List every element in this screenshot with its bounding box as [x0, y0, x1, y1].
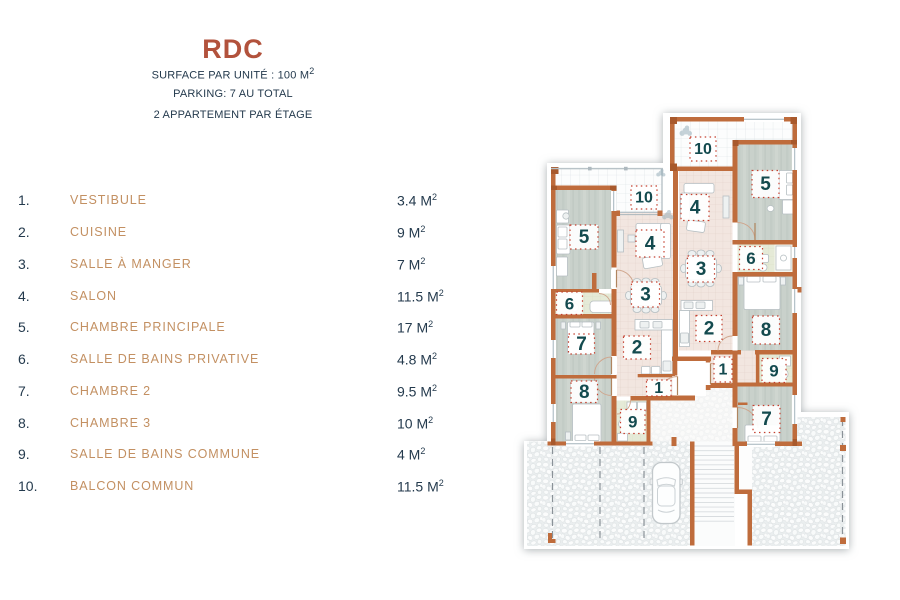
svg-text:4: 4: [645, 234, 656, 255]
svg-text:3: 3: [696, 259, 707, 280]
svg-text:4: 4: [690, 198, 701, 219]
svg-text:6: 6: [565, 294, 574, 313]
svg-text:9: 9: [769, 362, 778, 381]
svg-text:10: 10: [694, 141, 712, 158]
svg-text:8: 8: [761, 320, 772, 341]
svg-text:3: 3: [640, 285, 651, 306]
svg-text:2: 2: [704, 319, 715, 340]
svg-text:8: 8: [579, 382, 590, 403]
svg-text:9: 9: [628, 413, 637, 432]
svg-text:5: 5: [579, 227, 590, 248]
svg-text:1: 1: [719, 362, 728, 379]
svg-text:1: 1: [654, 380, 663, 397]
svg-text:2: 2: [632, 338, 643, 359]
svg-text:6: 6: [746, 249, 755, 268]
svg-text:7: 7: [761, 409, 772, 430]
svg-text:5: 5: [760, 174, 771, 195]
svg-text:10: 10: [635, 190, 653, 207]
svg-text:7: 7: [576, 334, 587, 355]
